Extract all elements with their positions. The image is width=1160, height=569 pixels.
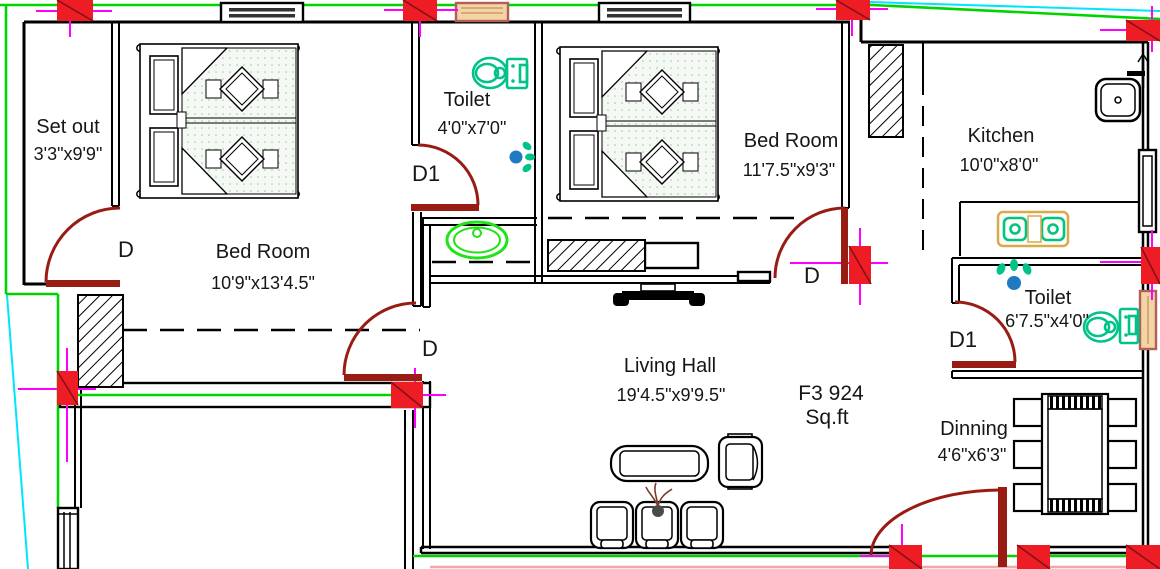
kitchen-dims: 10'0"x8'0" (960, 155, 1039, 175)
door-bedroom1 (344, 303, 422, 381)
armchair (719, 434, 762, 489)
dining-table (1042, 394, 1108, 514)
door-label-toilet1: D1 (412, 161, 440, 186)
setout-dims: 3'3"x9'9" (34, 144, 103, 164)
dining-name: Dinning (940, 418, 1008, 440)
kitchen-sink-icon (1096, 54, 1148, 121)
dining-chair (1108, 441, 1136, 468)
bedroom2-dims: 11'7.5"x9'3" (743, 160, 835, 180)
column-marker (1126, 20, 1160, 41)
toilet1-shower-icon (510, 140, 536, 174)
bed-bedroom1 (137, 44, 299, 198)
door-label-toilet2: D1 (949, 327, 977, 352)
column-marker (849, 246, 871, 284)
toilet1-dims: 4'0"x7'0" (438, 118, 507, 138)
bed-bedroom2 (557, 47, 719, 201)
column-marker (1126, 545, 1160, 569)
floor-plan: Set out 3'3"x9'9" D Bed Room 10'9"x13'4.… (0, 0, 1160, 569)
window-bedroom1 (221, 3, 303, 22)
door-label-bedroom2: D (804, 263, 820, 288)
toilet2-name: Toilet (1025, 287, 1072, 309)
column-marker (889, 545, 922, 569)
sofa-set (591, 434, 762, 548)
door-label-bedroom1: D (422, 336, 438, 361)
bedroom1-name: Bed Room (216, 241, 311, 263)
toilet2-shower-icon (995, 259, 1033, 290)
dining-chair (1014, 441, 1042, 468)
stove-icon (998, 212, 1068, 246)
wash-basin-icon (447, 222, 507, 258)
door-setout (46, 208, 120, 287)
column-marker (1141, 247, 1160, 284)
single-chair (681, 502, 723, 548)
tv-unit-hatch (548, 240, 645, 271)
window-kitchen (1139, 150, 1156, 232)
bedroom2-name: Bed Room (744, 130, 839, 152)
sofa-long (611, 446, 708, 481)
unit-area-line1: F3 924 (798, 382, 864, 405)
toilet1-name: Toilet (444, 89, 491, 111)
single-chair (591, 502, 633, 548)
hatch-block-kitchen (869, 45, 903, 137)
living-hall-dims: 19'4.5"x9'9.5" (617, 385, 726, 405)
window-bedroom2 (599, 3, 690, 22)
bedroom1-dims: 10'9"x13'4.5" (211, 273, 315, 293)
toilet2-wc-icon (1084, 309, 1138, 343)
dining-table-set (1014, 394, 1136, 514)
dining-chair (1108, 484, 1136, 511)
window-toilet1-ventilator (456, 3, 508, 21)
window-toilet2-ventilator (1140, 291, 1156, 349)
door-label-setout: D (118, 237, 134, 262)
window-bottom-left (58, 508, 78, 569)
dining-chair (1108, 399, 1136, 426)
hatch-block-left (78, 295, 123, 387)
unit-area-line2: Sq.ft (805, 406, 848, 429)
dining-dims: 4'6"x6'3" (938, 445, 1007, 465)
setout-name: Set out (36, 116, 100, 138)
column-marker (57, 0, 93, 21)
toilet1-wc-icon (473, 58, 527, 88)
column-marker (57, 371, 78, 405)
column-marker (836, 0, 870, 20)
tv-unit-shelf (645, 243, 698, 268)
column-marker (1017, 545, 1050, 569)
floor-plan-drawing: Set out 3'3"x9'9" D Bed Room 10'9"x13'4.… (0, 0, 1160, 569)
column-marker (391, 382, 423, 408)
kitchen-name: Kitchen (968, 125, 1035, 147)
tv-icon (613, 284, 705, 306)
living-hall-name: Living Hall (624, 355, 716, 377)
dining-chair (1014, 484, 1042, 511)
toilet2-dims: 6'7.5"x4'0" (1005, 311, 1089, 331)
doors (46, 145, 1016, 567)
column-marker (403, 0, 437, 21)
dining-chair (1014, 399, 1042, 426)
